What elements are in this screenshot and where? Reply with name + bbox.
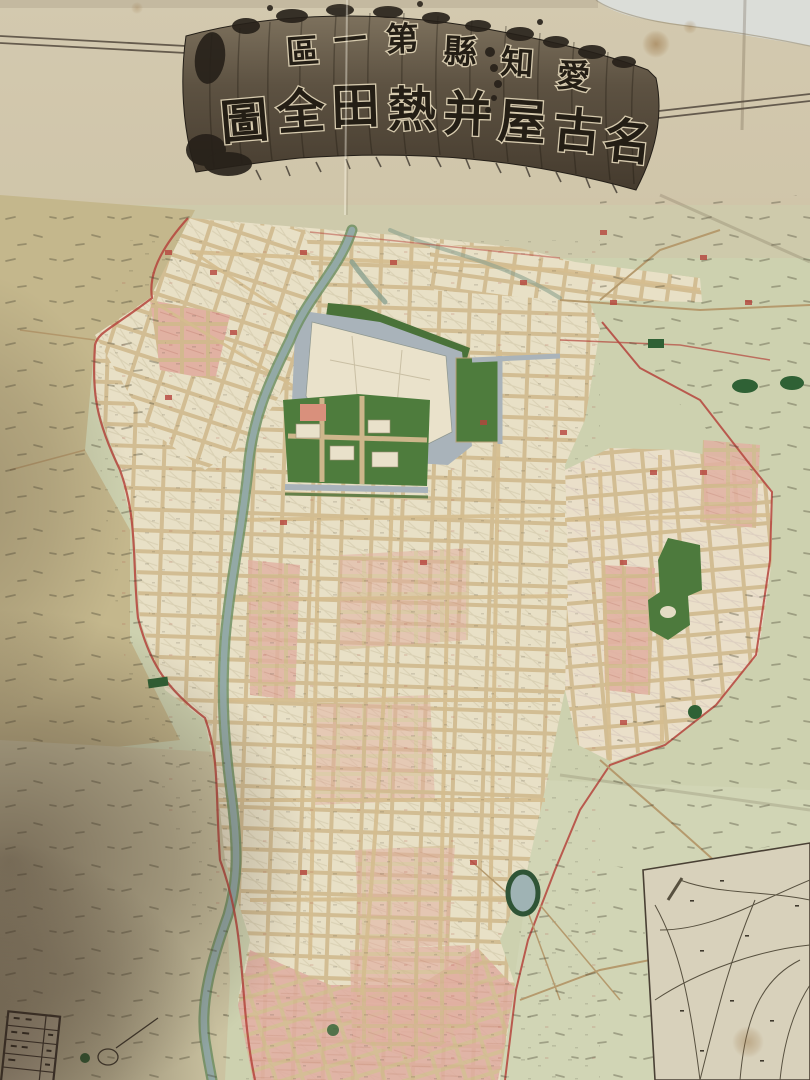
moat-south [285,487,428,490]
title-char: 田 [330,78,380,136]
title-char: 第 [385,19,419,59]
title-char: 并 [443,86,493,144]
title-char: 名 [601,112,655,173]
foxing-stain [732,1026,764,1058]
title-char: 熱 [388,82,436,138]
title-char: 圖 [218,92,271,152]
map-artwork: 區 一 第 縣 知 愛 圖 全 田 熱 并 屋 古 名 [0,0,810,1080]
title-char: 一 [332,19,369,61]
photo-of-antique-nagoya-map: 區 一 第 縣 知 愛 圖 全 田 熱 并 屋 古 名 [0,0,810,1080]
barracks-pink-block [300,404,326,421]
title-char: 愛 [555,55,591,97]
castle-east-garden [456,358,498,442]
title-char: 縣 [443,31,478,72]
title-char: 全 [274,83,328,142]
pond [508,872,538,914]
title-char: 區 [285,31,321,72]
bottom-right-inset [643,843,810,1080]
title-char: 屋 [496,93,548,152]
park-clearing [660,606,676,618]
title-char: 知 [499,42,535,83]
title-char: 古 [551,102,604,162]
